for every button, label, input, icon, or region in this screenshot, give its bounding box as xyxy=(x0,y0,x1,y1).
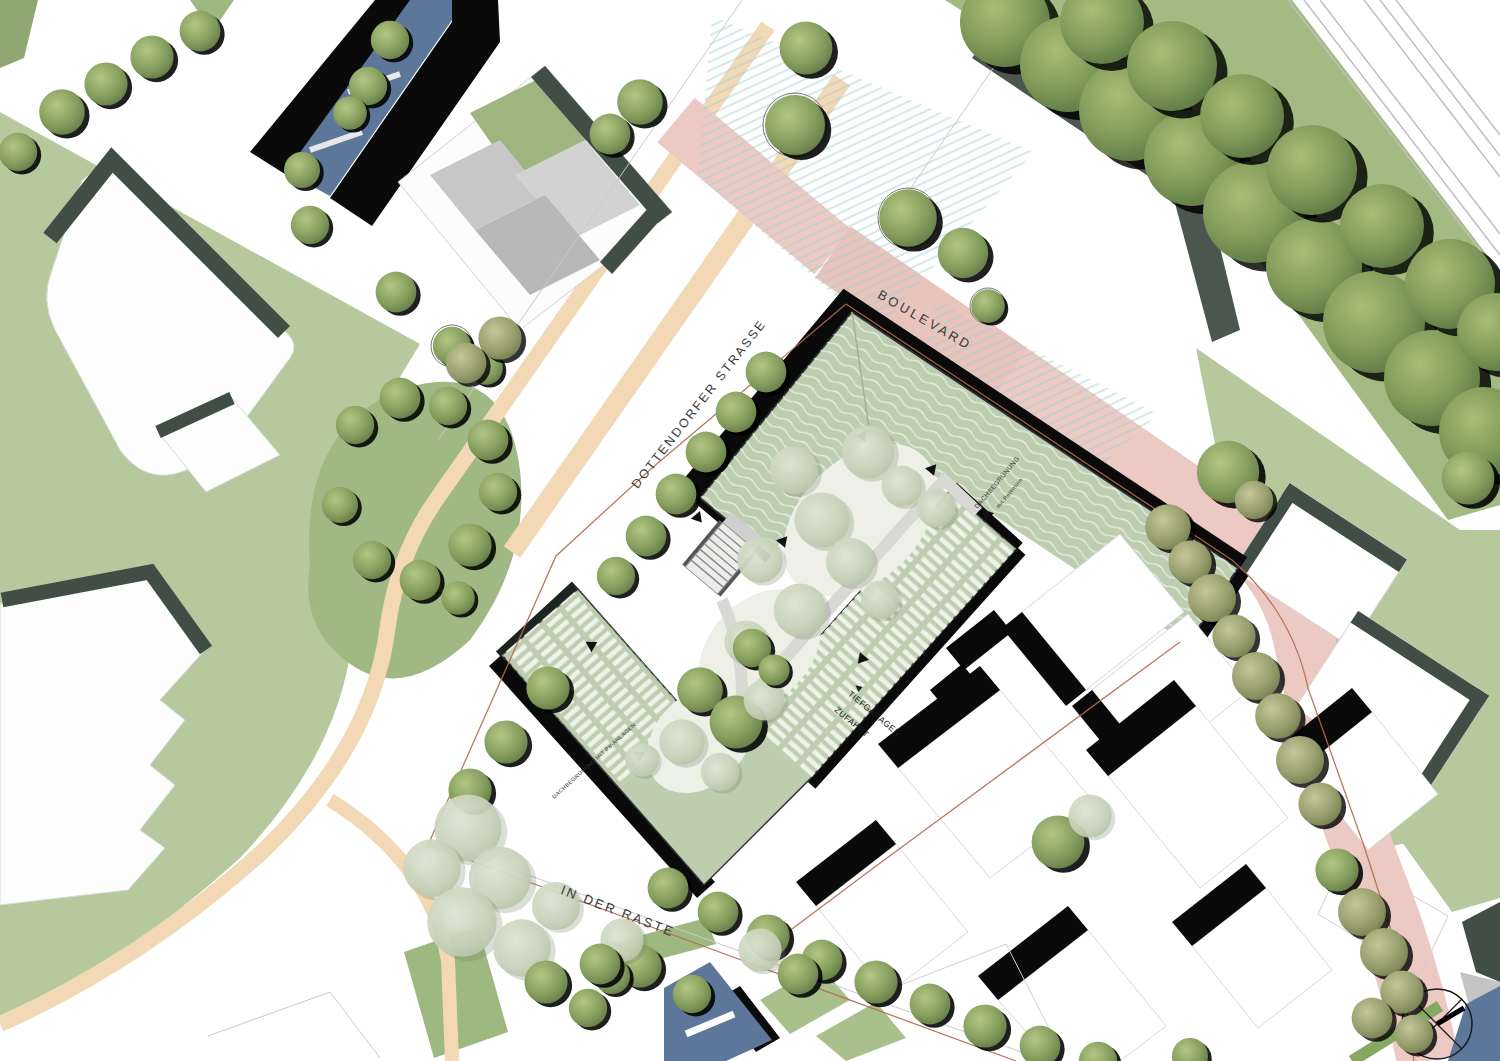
site-plan-canvas xyxy=(0,0,1500,1061)
site-plan: BOULEVARD DOTTENDORFER STRASSE IN DER RA… xyxy=(0,0,1500,1061)
water-basin xyxy=(664,962,780,1061)
